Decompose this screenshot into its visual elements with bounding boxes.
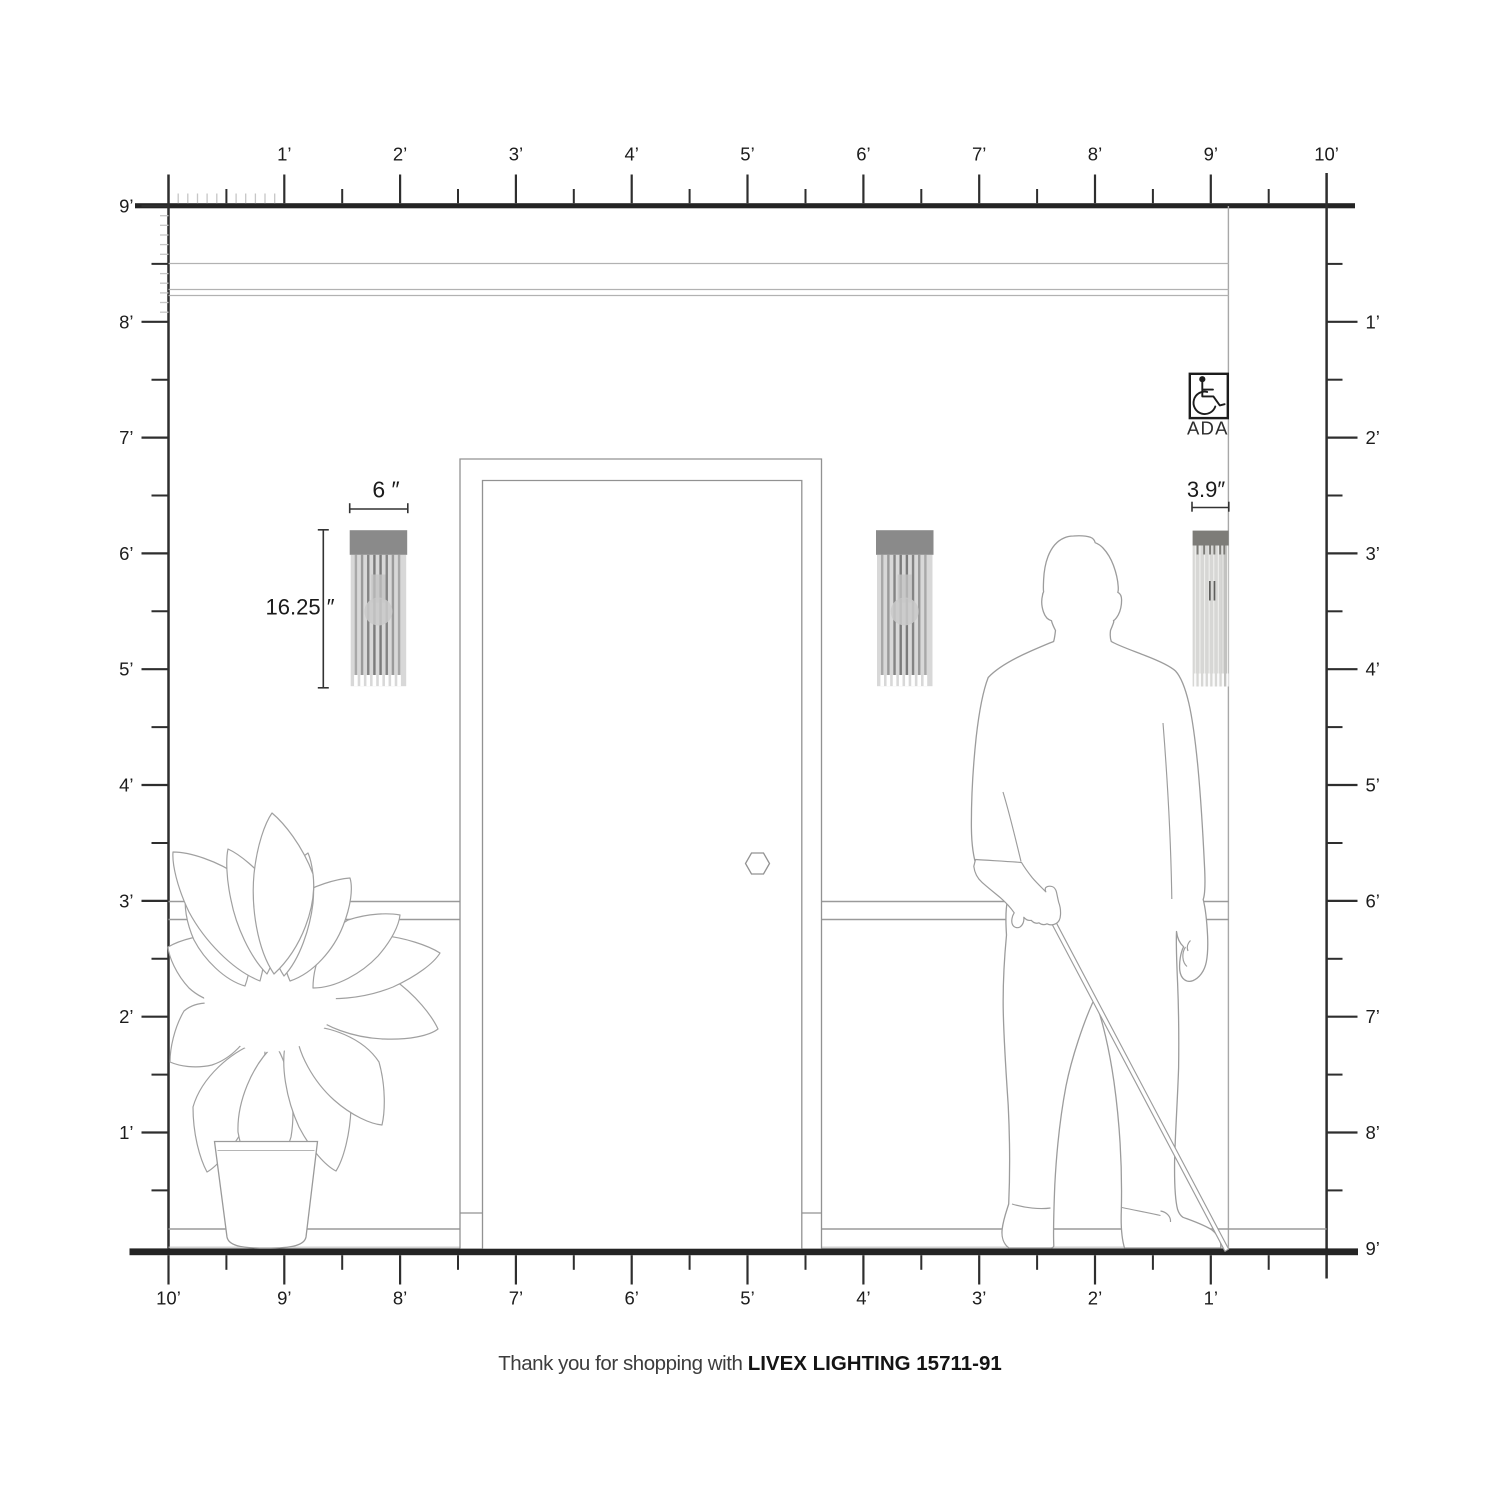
svg-text:10’: 10’ <box>1314 144 1339 165</box>
svg-text:6’: 6’ <box>856 144 870 165</box>
svg-text:4’: 4’ <box>624 144 638 165</box>
svg-text:10’: 10’ <box>156 1288 181 1309</box>
svg-text:9’: 9’ <box>119 196 133 217</box>
svg-text:1’: 1’ <box>277 144 291 165</box>
svg-text:1’: 1’ <box>119 1122 133 1143</box>
svg-text:9’: 9’ <box>1204 144 1218 165</box>
svg-text:8’: 8’ <box>393 1288 407 1309</box>
svg-text:5’: 5’ <box>1366 775 1380 796</box>
svg-text:4’: 4’ <box>119 775 133 796</box>
svg-text:5’: 5’ <box>740 1288 754 1309</box>
svg-text:8’: 8’ <box>1088 144 1102 165</box>
svg-text:6’: 6’ <box>119 543 133 564</box>
svg-text:7’: 7’ <box>972 144 986 165</box>
svg-text:3’: 3’ <box>972 1288 986 1309</box>
svg-text:ADA: ADA <box>1187 418 1229 439</box>
svg-text:4’: 4’ <box>856 1288 870 1309</box>
svg-text:3’: 3’ <box>119 890 133 911</box>
svg-text:4’: 4’ <box>1366 659 1380 680</box>
svg-text:6 ″: 6 ″ <box>372 477 399 503</box>
svg-text:9’: 9’ <box>1366 1238 1380 1259</box>
svg-text:7’: 7’ <box>119 427 133 448</box>
svg-text:2’: 2’ <box>1088 1288 1102 1309</box>
svg-text:2’: 2’ <box>393 144 407 165</box>
svg-text:7’: 7’ <box>509 1288 523 1309</box>
svg-text:5’: 5’ <box>740 144 754 165</box>
svg-text:8’: 8’ <box>1366 1122 1380 1143</box>
svg-text:7’: 7’ <box>1366 1006 1380 1027</box>
svg-text:16.25 ″: 16.25 ″ <box>266 595 335 620</box>
svg-text:8’: 8’ <box>119 311 133 332</box>
svg-text:1’: 1’ <box>1366 311 1380 332</box>
svg-text:6’: 6’ <box>1366 890 1380 911</box>
svg-text:3’: 3’ <box>1366 543 1380 564</box>
svg-text:6’: 6’ <box>624 1288 638 1309</box>
svg-text:3’: 3’ <box>509 144 523 165</box>
svg-text:9’: 9’ <box>277 1288 291 1309</box>
svg-text:3.9″: 3.9″ <box>1187 477 1226 502</box>
svg-text:5’: 5’ <box>119 659 133 680</box>
svg-text:1’: 1’ <box>1204 1288 1218 1309</box>
svg-text:2’: 2’ <box>1366 427 1380 448</box>
svg-text:2’: 2’ <box>119 1006 133 1027</box>
